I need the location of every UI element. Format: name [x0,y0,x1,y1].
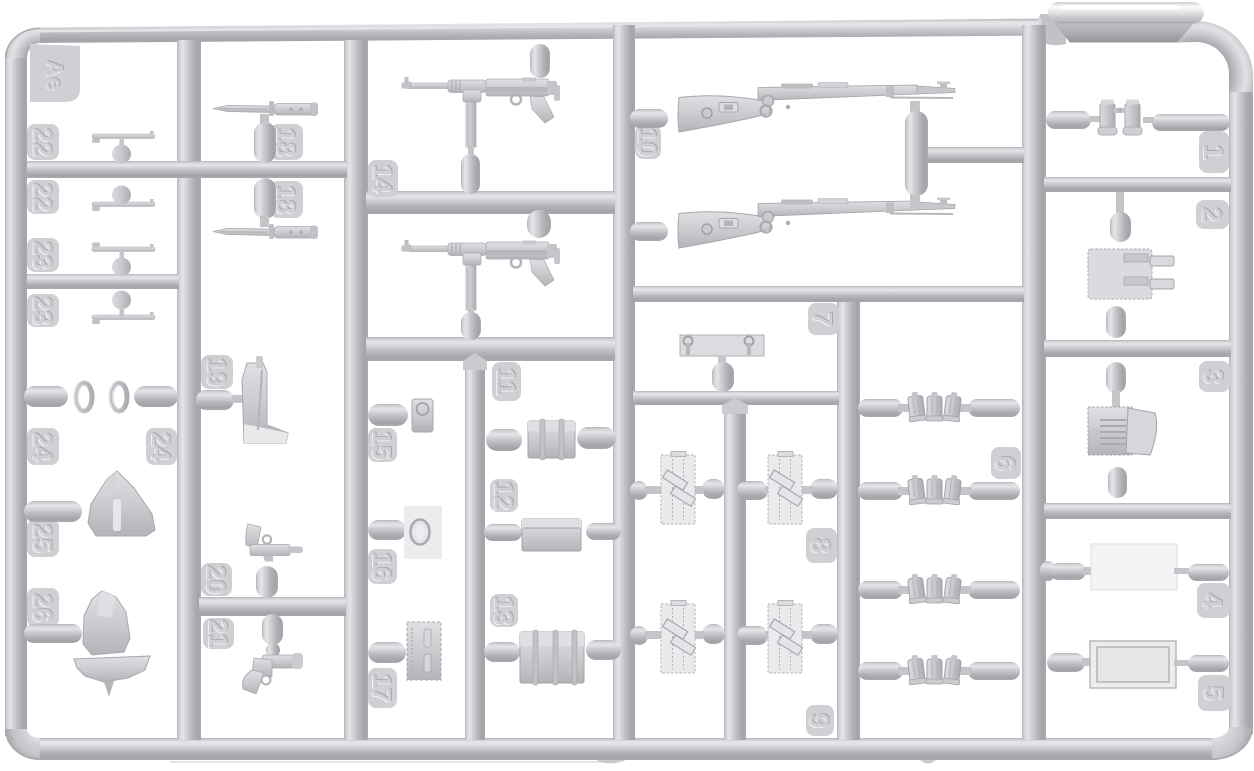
svg-text:22: 22 [27,128,57,157]
svg-text:2: 2 [1196,207,1226,222]
svg-text:15: 15 [367,431,397,460]
svg-text:20: 20 [201,565,231,594]
svg-text:4: 4 [1197,593,1227,608]
svg-text:16: 16 [367,552,397,581]
svg-text:22: 22 [27,183,57,212]
svg-text:24: 24 [146,432,176,461]
svg-text:5: 5 [1198,686,1228,701]
svg-text:19: 19 [201,358,231,387]
svg-text:12: 12 [488,481,518,510]
svg-text:14: 14 [367,164,397,193]
svg-text:24: 24 [27,432,57,461]
svg-text:23: 23 [27,296,57,325]
svg-text:23: 23 [27,241,57,270]
svg-text:13: 13 [488,596,518,625]
svg-text:9: 9 [804,713,834,728]
svg-text:10: 10 [632,128,662,157]
svg-text:1: 1 [1198,145,1228,160]
svg-text:17: 17 [367,674,397,703]
svg-text:11: 11 [491,368,521,396]
svg-text:8: 8 [805,538,835,553]
svg-text:21: 21 [203,619,233,648]
svg-text:Ae: Ae [41,60,68,91]
svg-text:7: 7 [807,312,837,327]
svg-text:6: 6 [990,456,1020,471]
svg-text:3: 3 [1198,369,1228,384]
svg-text:25: 25 [27,524,57,553]
svg-text:26: 26 [27,593,57,622]
